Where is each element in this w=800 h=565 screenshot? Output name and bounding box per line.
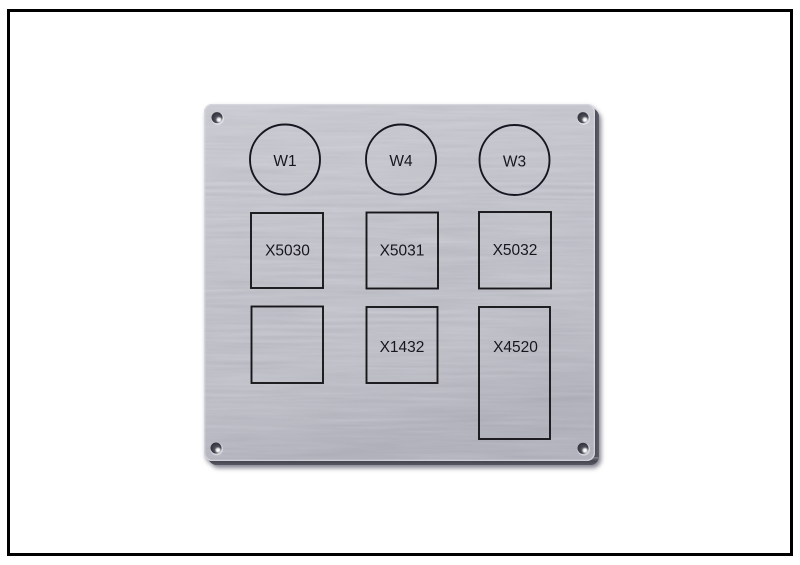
svg-text:W1: W1 bbox=[273, 153, 296, 170]
svg-text:X5031: X5031 bbox=[380, 243, 425, 260]
svg-text:X1432: X1432 bbox=[380, 339, 425, 356]
svg-text:W3: W3 bbox=[503, 153, 526, 170]
svg-text:W4: W4 bbox=[389, 153, 413, 170]
svg-text:X5032: X5032 bbox=[493, 242, 538, 259]
svg-text:X5030: X5030 bbox=[265, 243, 310, 260]
svg-text:X4520: X4520 bbox=[493, 339, 538, 356]
